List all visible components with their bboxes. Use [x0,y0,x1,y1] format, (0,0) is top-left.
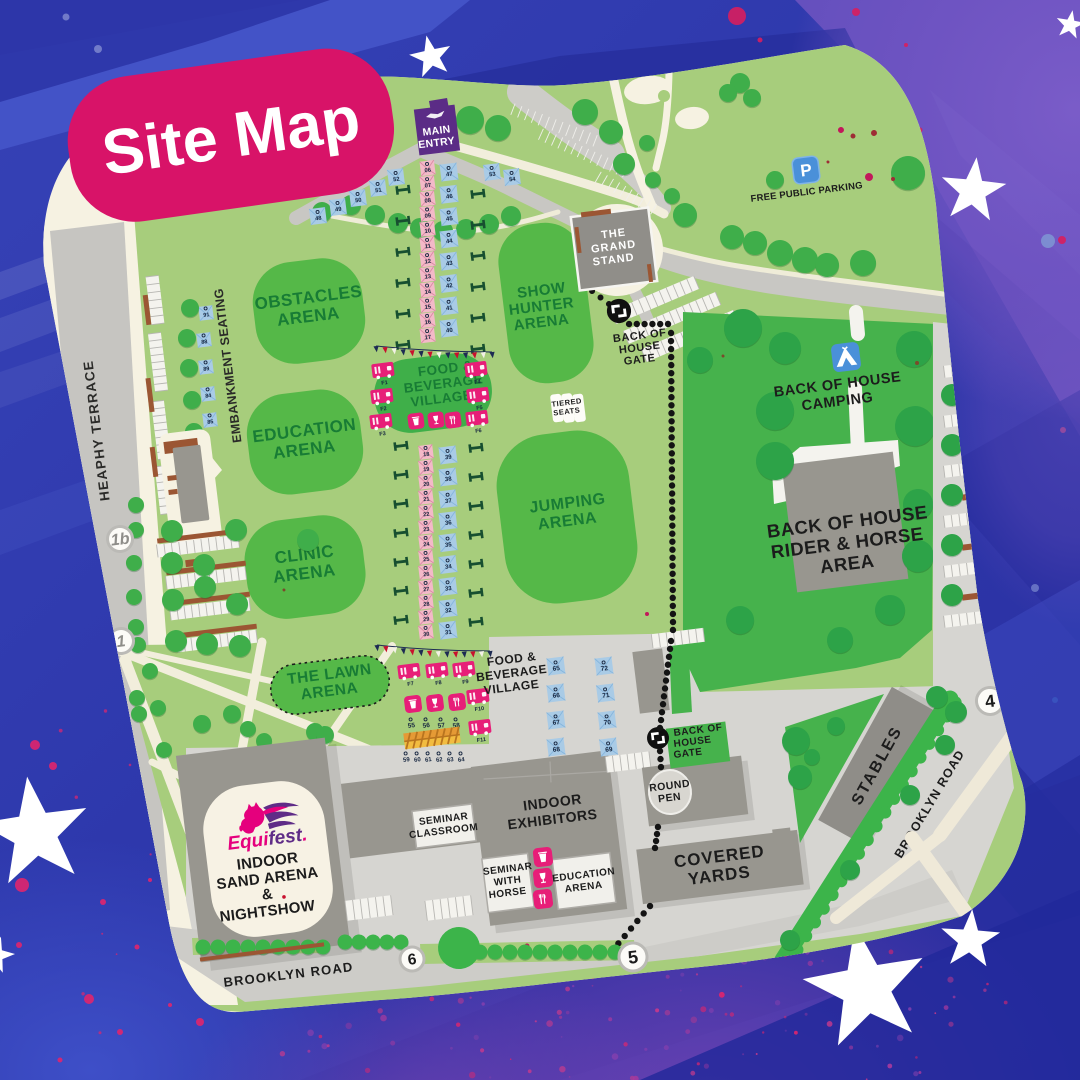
svg-text:85: 85 [207,419,214,426]
svg-text:22: 22 [423,512,430,519]
svg-text:29: 29 [423,617,430,624]
svg-text:71: 71 [602,692,610,700]
svg-text:P: P [799,160,813,180]
svg-text:18: 18 [423,452,430,459]
svg-text:F8: F8 [435,680,442,687]
svg-text:19: 19 [423,467,430,474]
svg-text:10: 10 [424,228,431,235]
svg-text:F11: F11 [477,737,487,744]
svg-text:F2: F2 [380,406,387,413]
svg-text:12: 12 [424,259,431,266]
svg-text:17: 17 [424,335,431,342]
svg-text:50: 50 [355,198,362,205]
svg-text:69: 69 [605,746,613,754]
svg-text:26: 26 [423,572,430,579]
svg-text:56: 56 [422,722,430,730]
svg-text:65: 65 [552,665,560,673]
svg-text:89: 89 [203,366,210,373]
svg-text:67: 67 [552,719,560,727]
svg-text:&: & [261,885,274,903]
svg-text:88: 88 [201,339,208,346]
svg-text:27: 27 [423,587,430,594]
svg-text:07: 07 [424,183,431,190]
svg-text:20: 20 [423,482,430,489]
svg-text:30: 30 [423,632,430,639]
svg-text:72: 72 [600,665,608,673]
svg-text:21: 21 [423,497,430,504]
svg-text:F10: F10 [474,706,484,713]
svg-text:F1: F1 [381,380,388,387]
svg-text:25: 25 [423,557,430,564]
svg-text:70: 70 [603,719,611,727]
svg-text:91: 91 [203,312,210,319]
svg-text:1b: 1b [110,529,131,549]
svg-text:28: 28 [423,602,430,609]
svg-text:66: 66 [552,692,560,700]
svg-text:23: 23 [423,527,430,534]
svg-text:55: 55 [407,722,415,730]
svg-text:52: 52 [393,177,400,184]
svg-text:F9: F9 [462,679,469,686]
svg-text:68: 68 [552,746,560,754]
svg-text:F3: F3 [379,431,386,438]
svg-text:F6: F6 [475,428,482,435]
svg-text:F7: F7 [407,681,414,688]
